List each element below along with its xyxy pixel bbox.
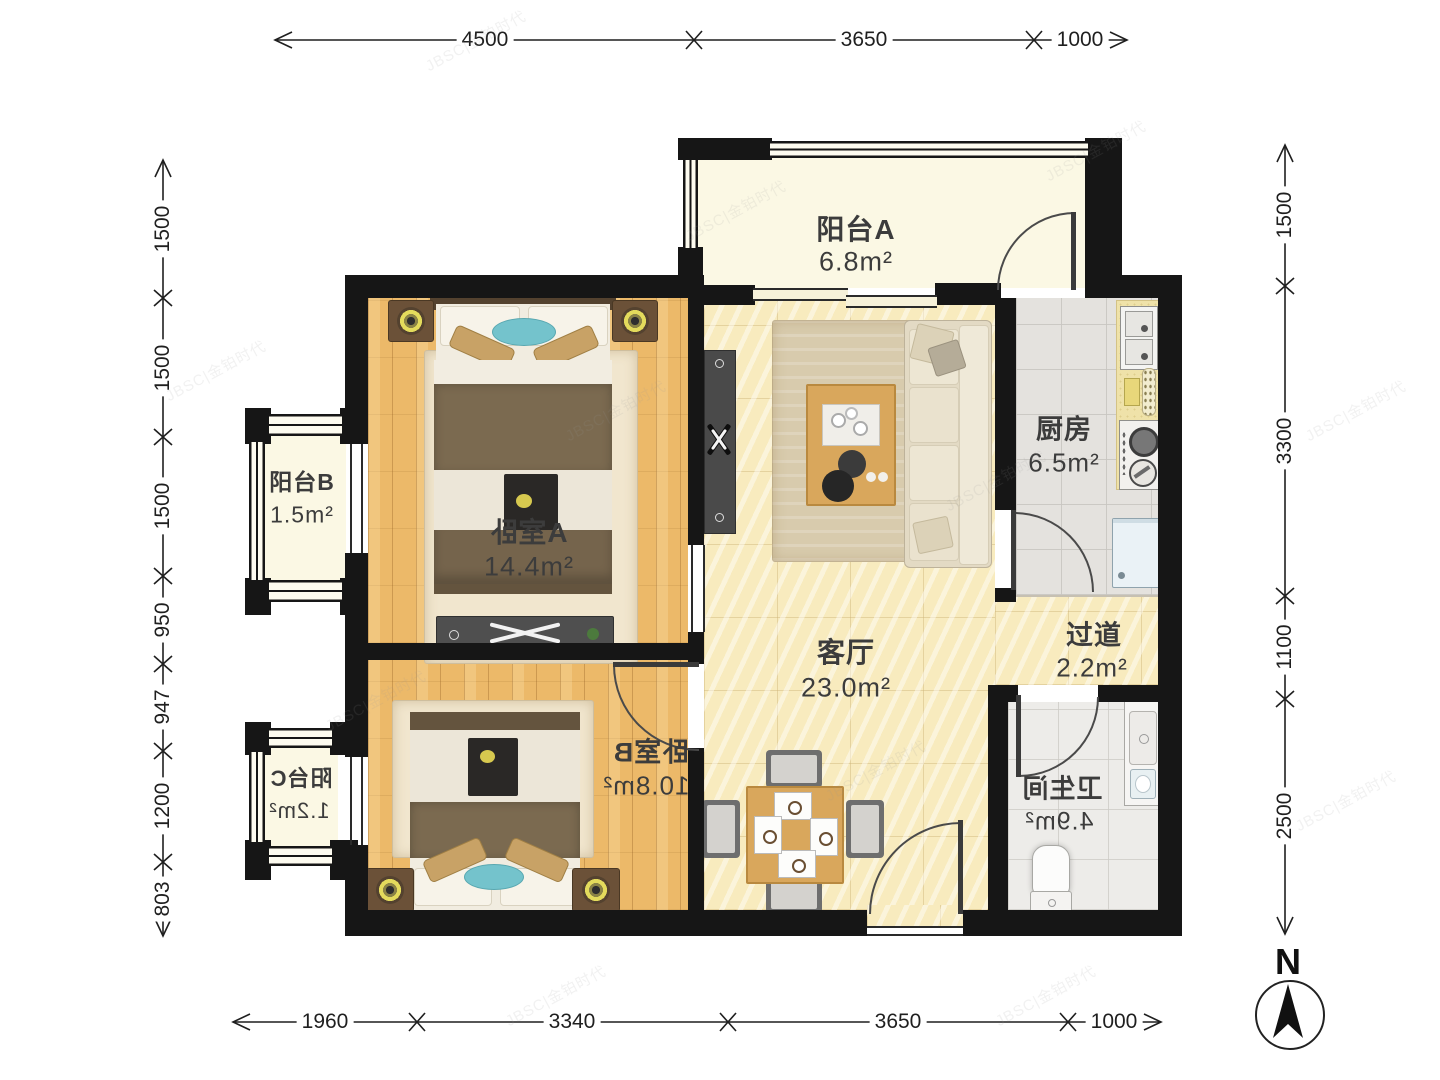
wall xyxy=(688,632,704,664)
hallway-area: 2.2m² xyxy=(1056,653,1127,684)
bed-tray xyxy=(468,738,518,796)
entry-threshold xyxy=(867,926,963,936)
toilet-bowl xyxy=(1032,845,1070,897)
bed-blanket xyxy=(434,384,612,474)
utensil-holder xyxy=(1124,378,1140,406)
sofa xyxy=(904,320,992,568)
pan-handle xyxy=(1133,465,1150,479)
wall xyxy=(345,643,704,660)
chair-seat xyxy=(851,805,879,853)
watermark: JBSC|金铂时代 xyxy=(1292,765,1400,836)
bedroom-a-label: 卧室A xyxy=(489,511,568,551)
bedroom-b-balcony-opening xyxy=(350,757,363,845)
balcony-b-window xyxy=(269,580,342,602)
wall xyxy=(330,722,358,755)
tray-item xyxy=(516,494,532,508)
wall xyxy=(1098,685,1160,702)
bathroom-door-leaf xyxy=(1016,695,1021,777)
kitchen-hallway-divider xyxy=(1016,595,1158,597)
vanity-counter xyxy=(1129,711,1157,765)
balcony-b-window xyxy=(269,414,342,436)
balcony-a-label: 阳台A xyxy=(816,208,895,248)
cup-icon xyxy=(853,421,868,436)
sofa-seat xyxy=(909,387,959,443)
wall xyxy=(330,840,358,880)
nightstand xyxy=(388,300,434,342)
wall xyxy=(1158,275,1182,936)
tv-cabinet xyxy=(704,350,736,534)
decorative-pillow xyxy=(464,864,524,890)
chair-seat xyxy=(707,805,735,853)
dining-chair xyxy=(702,800,740,858)
plate-icon xyxy=(763,830,777,844)
wall xyxy=(340,578,368,615)
burner-icon xyxy=(1129,459,1157,487)
nightstand xyxy=(612,300,658,342)
stove-knobs xyxy=(1122,431,1126,475)
plate-icon xyxy=(788,801,802,815)
lamp xyxy=(397,307,425,335)
watermark: JBSC|金铂时代 xyxy=(162,335,270,406)
bowl-icon xyxy=(822,470,854,502)
wall xyxy=(988,685,1018,702)
placemat xyxy=(754,816,782,854)
bathroom-area-mirrored: 4.9m² xyxy=(1025,808,1094,837)
dining-chair xyxy=(766,750,822,788)
balcony-sliding-sill xyxy=(846,295,937,308)
wall xyxy=(245,722,271,755)
wall xyxy=(1085,138,1122,298)
burner-icon xyxy=(1129,427,1159,457)
coffee-table xyxy=(806,384,896,506)
knob-icon xyxy=(715,513,724,522)
bed-fringe xyxy=(434,584,612,594)
chair-seat xyxy=(771,881,817,909)
fridge xyxy=(1112,518,1160,588)
dim-top-1: 4500 xyxy=(457,28,514,52)
bathroom-vanity xyxy=(1124,700,1162,806)
dim-bottom-3: 3650 xyxy=(870,1010,927,1034)
balcony-b-label: 阳台B xyxy=(269,463,335,497)
bedroom-a-area: 14.4m² xyxy=(484,552,574,583)
sink-basin xyxy=(1125,339,1153,365)
hallway-label: 过道 xyxy=(1066,614,1122,653)
basin-icon xyxy=(1135,775,1151,793)
balcony-a-door-leaf xyxy=(1071,212,1076,290)
bedroom-b-door-leaf xyxy=(613,662,699,667)
wall xyxy=(678,138,772,160)
wall xyxy=(995,298,1016,510)
nightstand xyxy=(366,868,414,912)
wall xyxy=(935,283,1001,305)
toilet xyxy=(1028,845,1072,911)
balcony-c-window xyxy=(269,846,332,866)
drain-icon xyxy=(1141,325,1148,332)
lamp xyxy=(582,876,610,904)
dim-bottom-1: 1960 xyxy=(297,1010,354,1034)
compass-needle-icon xyxy=(1255,980,1321,1046)
balcony-b-window xyxy=(249,442,265,580)
dining-table xyxy=(746,786,844,884)
dim-right-3: 1100 xyxy=(1273,619,1297,674)
fridge-top xyxy=(1113,519,1159,523)
dim-bottom-2: 3340 xyxy=(544,1010,601,1034)
sink-basin xyxy=(1125,311,1153,337)
wall xyxy=(245,578,271,615)
bathroom-label-mirrored: 卫生间 xyxy=(1021,769,1102,806)
cup-icon xyxy=(831,413,846,428)
lamp xyxy=(621,307,649,335)
sofa-seat xyxy=(909,445,959,501)
balcony-sliding-sill xyxy=(753,288,848,301)
bedroom-a-label-flipped-char: 卧 xyxy=(489,511,518,551)
handle-icon xyxy=(1118,572,1125,579)
dining-chair xyxy=(846,800,884,858)
dim-left-6: 1200 xyxy=(151,778,175,835)
bed-fringe xyxy=(410,712,580,732)
bedroom-b-area-mirrored: 10.8m² xyxy=(603,771,690,802)
lamp xyxy=(376,876,404,904)
cup-icon xyxy=(866,472,876,482)
bedroom-a-label-rest: 室A xyxy=(518,517,568,548)
wall xyxy=(688,748,704,936)
balcony-c-area-mirrored: 1.2m² xyxy=(268,798,329,824)
dim-left-7: 803 xyxy=(151,876,175,921)
knob-icon xyxy=(449,630,459,640)
wall xyxy=(695,285,755,305)
drain-icon xyxy=(1141,353,1148,360)
kitchen-label: 厨房 xyxy=(1036,408,1092,447)
watermark: JBSC|金铂时代 xyxy=(992,960,1100,1031)
balcony-c-window xyxy=(269,728,332,748)
wash-basin xyxy=(1130,769,1156,799)
bed-blanket xyxy=(410,802,580,860)
bedroom-b-bed xyxy=(406,712,584,912)
living-room-area: 23.0m² xyxy=(801,673,891,704)
plate-icon xyxy=(819,832,833,846)
kitchen-door-leaf xyxy=(1011,510,1016,590)
balcony-a-area: 6.8m² xyxy=(819,247,893,278)
wall xyxy=(340,408,368,444)
knob-icon xyxy=(715,359,724,368)
balcony-a-window xyxy=(770,141,1088,158)
floor-plan: 阳台A 6.8m² 厨房 6.5m² 阳台B 1.5m² 卧室A 14.4m² … xyxy=(0,0,1440,1080)
bedroom-b-label-mirrored: 卧室B xyxy=(613,731,690,770)
balcony-b-area: 1.5m² xyxy=(270,502,334,529)
cup-icon xyxy=(878,472,888,482)
wall xyxy=(345,910,867,936)
plant-icon xyxy=(587,628,599,640)
balcony-c-label-mirrored: 阳台C xyxy=(270,761,333,793)
bedroom-a-balcony-opening xyxy=(350,444,363,553)
cup-icon xyxy=(845,407,858,420)
living-room-label: 客厅 xyxy=(817,631,875,671)
chair-seat xyxy=(771,755,817,783)
dim-right-4: 2500 xyxy=(1273,788,1297,845)
dim-left-5: 947 xyxy=(151,684,175,729)
kitchen-sink xyxy=(1120,306,1158,370)
decorative-pillow xyxy=(492,318,556,346)
dim-bottom-4: 1000 xyxy=(1086,1010,1143,1034)
dim-left-2: 1500 xyxy=(151,340,175,397)
placemat xyxy=(778,850,816,878)
faucet-icon xyxy=(1139,734,1149,744)
entry-door-leaf xyxy=(958,820,963,914)
tray-item xyxy=(480,750,495,763)
plate-icon xyxy=(792,859,806,873)
dish-rack xyxy=(1142,368,1156,416)
flush-button-icon xyxy=(1048,899,1056,907)
balcony-c-window xyxy=(249,752,265,842)
table-tray xyxy=(822,404,880,446)
kitchen-area: 6.5m² xyxy=(1028,448,1099,479)
balcony-a-side-window xyxy=(683,160,698,248)
dim-right-2: 3300 xyxy=(1273,413,1297,470)
watermark: JBSC|金铂时代 xyxy=(1302,375,1410,446)
wall xyxy=(245,840,271,880)
dim-left-1: 1500 xyxy=(151,201,175,258)
compass-north-label: N xyxy=(1275,941,1301,983)
dim-top-3: 1000 xyxy=(1052,28,1109,52)
dim-left-3: 1500 xyxy=(151,478,175,535)
wall xyxy=(988,685,1008,936)
wall xyxy=(345,275,704,298)
nightstand xyxy=(572,868,620,912)
dim-top-2: 3650 xyxy=(836,28,893,52)
bedroom-a-doorway xyxy=(691,545,705,632)
wall xyxy=(245,408,271,444)
dim-right-1: 1500 xyxy=(1273,187,1297,244)
stove xyxy=(1119,420,1159,490)
dim-left-4: 950 xyxy=(151,597,175,642)
wall xyxy=(688,275,704,545)
wall xyxy=(995,588,1016,602)
